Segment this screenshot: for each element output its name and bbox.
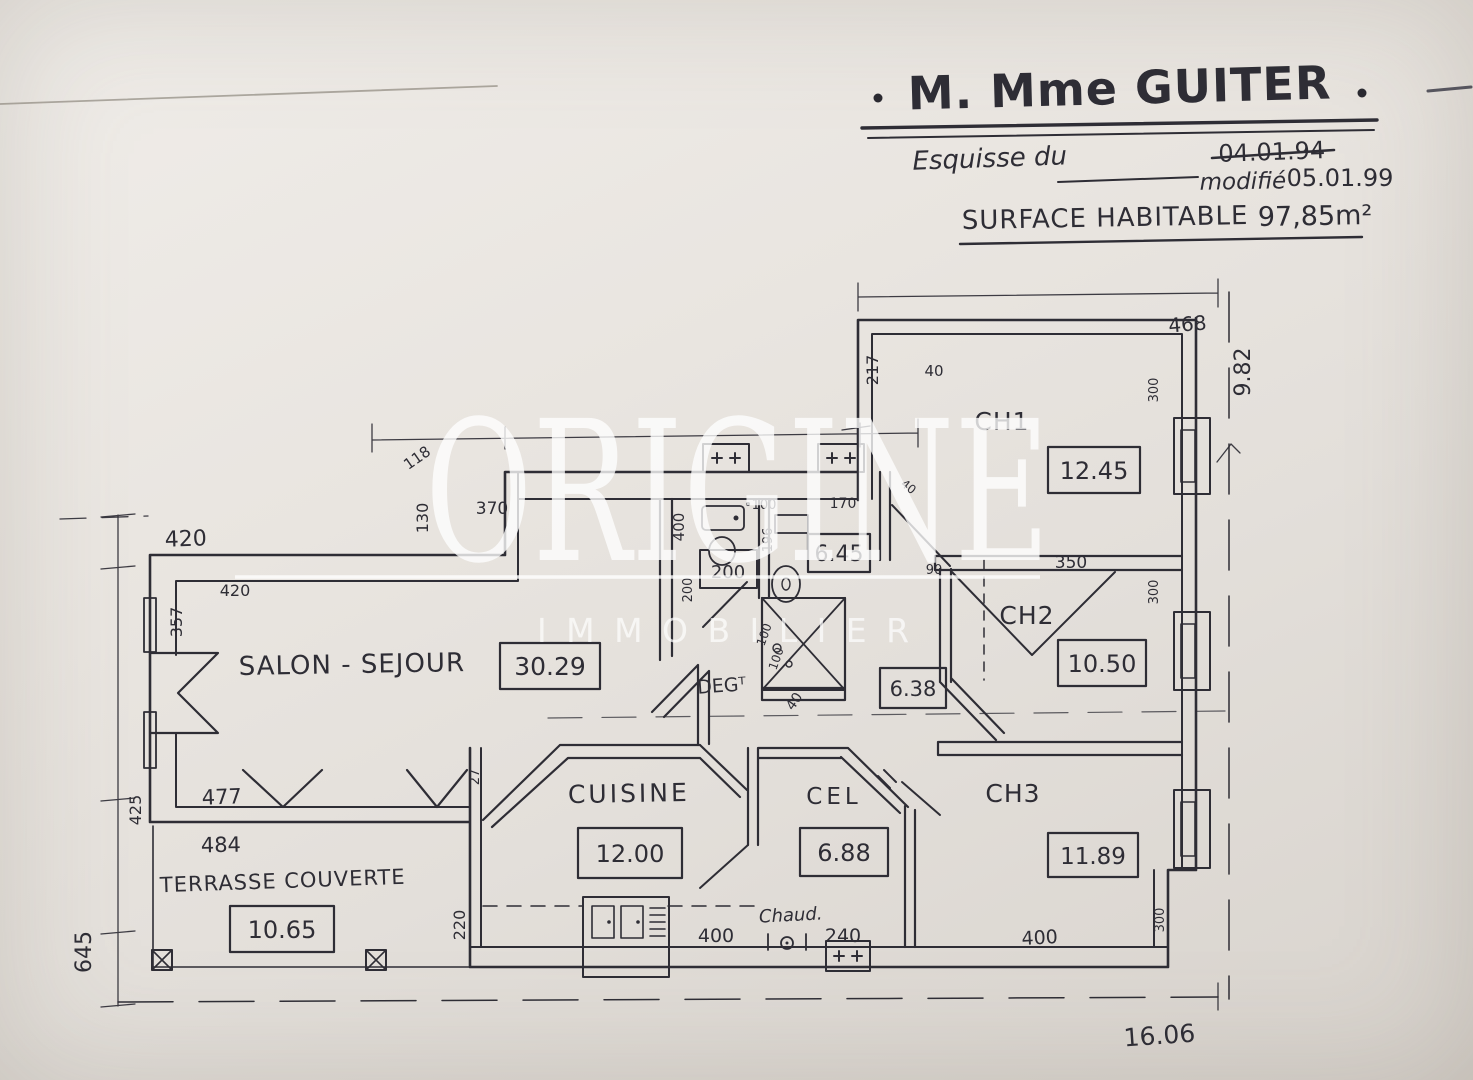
door-tick-icon	[878, 770, 896, 788]
dim: 300	[1147, 580, 1162, 605]
area-ch3: 11.89	[1060, 844, 1126, 870]
room-name-ch3: CH3	[985, 779, 1040, 808]
boiler-label: Chaud.	[758, 903, 823, 927]
dim: 425	[126, 795, 145, 826]
dim: 400	[698, 925, 734, 947]
surface-value: 97,85m²	[1258, 200, 1373, 233]
dim: 484	[201, 833, 242, 858]
bay-window-icon	[407, 770, 467, 807]
area-cellier: 6.88	[817, 839, 870, 867]
door-swing-icon	[700, 845, 748, 888]
door-swing-icon	[902, 782, 940, 815]
room-name-cuisine: CUISINE	[568, 778, 690, 809]
dim: 27	[468, 769, 483, 786]
surface-label: SURFACE HABITABLE	[962, 201, 1249, 236]
title-underline	[862, 120, 1377, 128]
dim: 220	[450, 910, 469, 941]
surface-underline	[960, 237, 1362, 244]
room-name-degagement: DEGᵀ	[697, 673, 748, 698]
window-shutter-icon	[1174, 612, 1210, 690]
room-name-terrasse: TERRASSE COUVERTE	[159, 865, 406, 898]
dim: 468	[1167, 310, 1207, 337]
dim: 645	[72, 931, 97, 973]
dim: 9.82	[1231, 348, 1256, 397]
dim: 350	[1055, 553, 1087, 573]
dim: 300	[1153, 908, 1168, 933]
dim: 420	[164, 526, 207, 552]
fireplace-icon	[150, 653, 218, 733]
title-block: M. Mme GUITER Esquisse du 04.01.94 modif…	[862, 55, 1393, 244]
bullet-icon	[874, 94, 883, 103]
area-cuisine: 12.00	[596, 840, 665, 868]
dim: 40	[924, 362, 943, 380]
floor-plan-sketch: M. Mme GUITER Esquisse du 04.01.94 modif…	[0, 0, 1473, 1080]
esquisse-label: Esquisse du	[912, 141, 1067, 176]
bay-window-icon	[243, 770, 322, 807]
watermark-secondary: IMMOBILIER	[537, 611, 909, 650]
dim: 16.06	[1123, 1019, 1196, 1053]
kitchen-sink-unit-icon	[583, 897, 669, 977]
room-name-salon: SALON - SEJOUR	[238, 648, 465, 682]
shower-icon	[762, 598, 845, 690]
area-ch2: 10.50	[1068, 650, 1137, 678]
dim: 420	[220, 581, 251, 600]
watermark: ORIGINE IMMOBILIER	[235, 379, 1050, 650]
dim: 300	[1147, 378, 1162, 403]
dim: 240	[825, 925, 861, 947]
area-salon: 30.29	[514, 652, 586, 681]
window-shutter-icon	[1174, 790, 1210, 868]
area-salle-eau: 6.38	[890, 677, 937, 701]
client-title: M. Mme GUITER	[907, 55, 1332, 120]
modified-date: 05.01.99	[1287, 164, 1394, 192]
bullet-icon	[1358, 89, 1367, 98]
area-terrasse: 10.65	[248, 916, 317, 944]
esquisse-underline	[1058, 177, 1198, 182]
area-ch1: 12.45	[1060, 457, 1129, 485]
modified-label: modifié	[1199, 168, 1286, 196]
window-shutter-icon	[1174, 418, 1210, 494]
dim: 40	[783, 690, 806, 714]
room-name-cellier: CEL	[806, 784, 861, 810]
floor-plan-scan: M. Mme GUITER Esquisse du 04.01.94 modif…	[0, 0, 1473, 1080]
dim: 400	[1021, 926, 1058, 950]
dim: 477	[201, 784, 242, 809]
dim: 357	[167, 607, 186, 638]
watermark-primary: ORIGINE	[425, 379, 1050, 606]
